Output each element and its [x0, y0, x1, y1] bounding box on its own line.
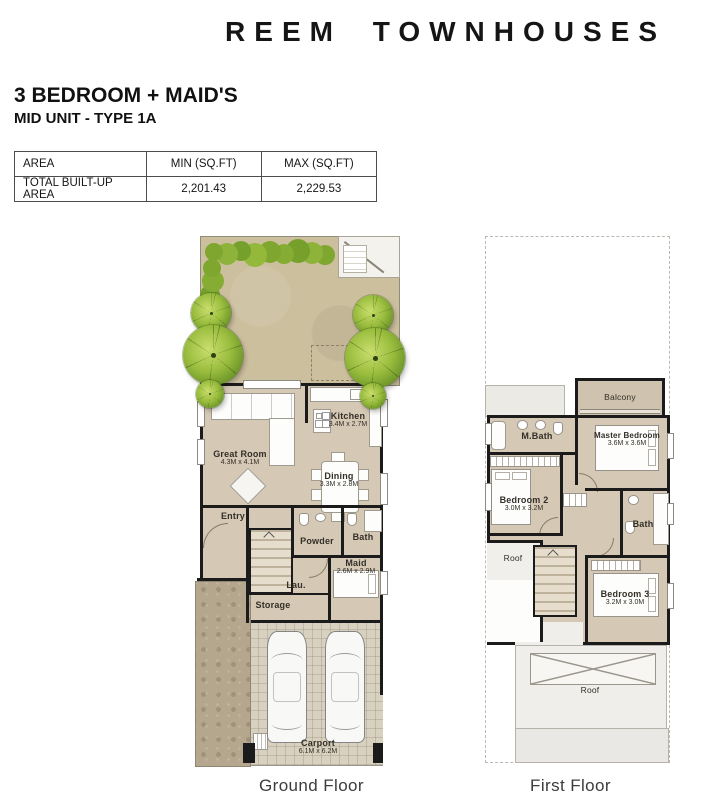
toilet: [347, 513, 357, 526]
wall: [249, 593, 329, 595]
area-table-data-row: TOTAL BUILT-UP AREA 2,201.43 2,229.53: [15, 177, 377, 202]
room-label-bath-first: Bath: [621, 519, 665, 530]
wall: [575, 415, 578, 485]
wall: [585, 488, 670, 491]
sink: [315, 513, 326, 522]
first-floor-caption: First Floor: [455, 776, 686, 796]
room-name: Bath: [344, 532, 382, 543]
brochure-page: REEM TOWNHOUSES 3 BEDROOM + MAID'S MID U…: [0, 0, 706, 800]
room-dims: 3.4M x 2.7M: [318, 421, 378, 429]
area-table-col-area: AREA: [15, 152, 147, 177]
area-table-col-min: MIN (SQ.FT): [146, 152, 261, 177]
tree-icon: [345, 328, 405, 388]
shower: [364, 510, 382, 532]
room-dims: 3.6M x 3.6M: [585, 440, 669, 448]
chair: [311, 489, 322, 501]
room-label-maid: Maid 2.6M x 2.9M: [331, 558, 381, 576]
room-name: Entry: [208, 511, 258, 522]
area-min-value: 2,201.43: [146, 177, 261, 202]
sink: [517, 420, 528, 430]
window: [667, 503, 674, 525]
room-label-carport: Carport 6.1M x 6.2M: [278, 738, 358, 756]
car-icon: [325, 631, 365, 743]
room-name: Balcony: [575, 392, 665, 402]
wall: [291, 505, 294, 558]
room-name: Roof: [550, 685, 630, 695]
area-table-col-max: MAX (SQ.FT): [261, 152, 376, 177]
ground-floor-plan: Great Room 4.3M x 4.1M Kitchen 3.4M x 2.…: [183, 233, 440, 778]
window: [667, 583, 674, 609]
bathtub: [491, 421, 506, 450]
tree-icon: [196, 380, 224, 408]
room-label-laundry: Lau.: [276, 580, 316, 591]
room-label-mbath: M.Bath: [507, 431, 567, 442]
room-dims: 3.2M x 3.0M: [589, 599, 661, 607]
brand-title: REEM TOWNHOUSES: [0, 16, 666, 48]
window: [485, 423, 492, 445]
window: [380, 571, 388, 595]
ground-floor-caption: Ground Floor: [183, 776, 440, 796]
car-icon: [267, 631, 307, 743]
car-windshield: [329, 653, 361, 668]
wall: [560, 452, 563, 536]
entry-steps: [343, 245, 367, 273]
roof-skylight: [530, 653, 656, 685]
car-rear-window: [272, 718, 302, 730]
room-label-roof-left: Roof: [489, 553, 537, 563]
unit-title: 3 BEDROOM + MAID'S: [14, 84, 238, 108]
area-table-row-label: TOTAL BUILT-UP AREA: [15, 177, 147, 202]
room-label-roof-main: Roof: [550, 685, 630, 695]
car-roof: [331, 672, 360, 703]
chair: [358, 489, 369, 501]
room-dims: 2.6M x 2.9M: [331, 568, 381, 576]
room-name: Roof: [489, 553, 537, 563]
room-label-bath: Bath: [344, 532, 382, 543]
toilet: [299, 513, 309, 526]
room-label-kitchen: Kitchen 3.4M x 2.7M: [318, 411, 378, 429]
roof-lower-strip: [515, 728, 669, 763]
sink: [535, 420, 546, 430]
sink: [628, 495, 639, 505]
tree-icon: [360, 383, 386, 409]
skylight-x-icon: [531, 654, 655, 684]
wall: [585, 555, 670, 558]
room-name: Powder: [295, 536, 339, 547]
room-label-powder: Powder: [295, 536, 339, 547]
carport-post: [243, 743, 255, 763]
room-name: M.Bath: [507, 431, 567, 442]
linen-closet: [563, 493, 587, 507]
first-floor-plan: Balcony M.Bath Master Bedroom 3.6M x 3.6…: [475, 233, 706, 778]
unit-subtitle: MID UNIT - TYPE 1A: [14, 110, 157, 127]
garden-sliding-door: [243, 380, 301, 389]
chair: [331, 452, 345, 462]
area-table-header-row: AREA MIN (SQ.FT) MAX (SQ.FT): [15, 152, 377, 177]
room-name: Lau.: [276, 580, 316, 591]
balcony-railing: [580, 409, 660, 414]
room-label-bedroom2: Bedroom 2 3.0M x 3.2M: [489, 495, 559, 513]
entry-canopy-roof: [485, 385, 565, 417]
car-windshield: [271, 653, 303, 668]
room-dims: 4.3M x 4.1M: [200, 459, 280, 467]
garden-entry-walkway: [338, 236, 400, 278]
room-label-master-bedroom: Master Bedroom 3.6M x 3.6M: [585, 431, 669, 448]
tree-icon: [183, 325, 243, 385]
window: [380, 473, 388, 505]
room-label-entry: Entry: [208, 511, 258, 522]
wall: [380, 623, 383, 695]
hedge-left: [203, 259, 221, 277]
car-roof: [273, 672, 302, 703]
pillow: [368, 574, 376, 594]
carport-post: [373, 743, 383, 763]
pillow: [512, 472, 527, 480]
pillow: [495, 472, 510, 480]
wardrobe: [591, 560, 641, 571]
room-name: Storage: [243, 600, 303, 611]
area-max-value: 2,229.53: [261, 177, 376, 202]
room-dims: 6.1M x 6.2M: [278, 748, 358, 756]
wall: [305, 383, 308, 423]
room-dims: 3.3M x 2.8M: [309, 481, 369, 489]
area-table: AREA MIN (SQ.FT) MAX (SQ.FT) TOTAL BUILT…: [14, 151, 377, 202]
car-rear-window: [330, 718, 360, 730]
room-label-dining: Dining 3.3M x 2.8M: [309, 471, 369, 489]
room-label-great-room: Great Room 4.3M x 4.1M: [200, 449, 280, 467]
wardrobe: [490, 456, 560, 467]
wall: [487, 533, 563, 536]
wall: [585, 555, 588, 645]
pillow: [648, 449, 656, 466]
room-dims: 3.0M x 3.2M: [489, 505, 559, 513]
wall: [197, 578, 249, 581]
room-name: Bath: [621, 519, 665, 530]
trash-bin-icon: [253, 733, 268, 750]
room-label-balcony: Balcony: [575, 392, 665, 402]
room-label-bedroom3: Bedroom 3 3.2M x 3.0M: [589, 589, 661, 607]
room-label-storage: Storage: [243, 600, 303, 611]
